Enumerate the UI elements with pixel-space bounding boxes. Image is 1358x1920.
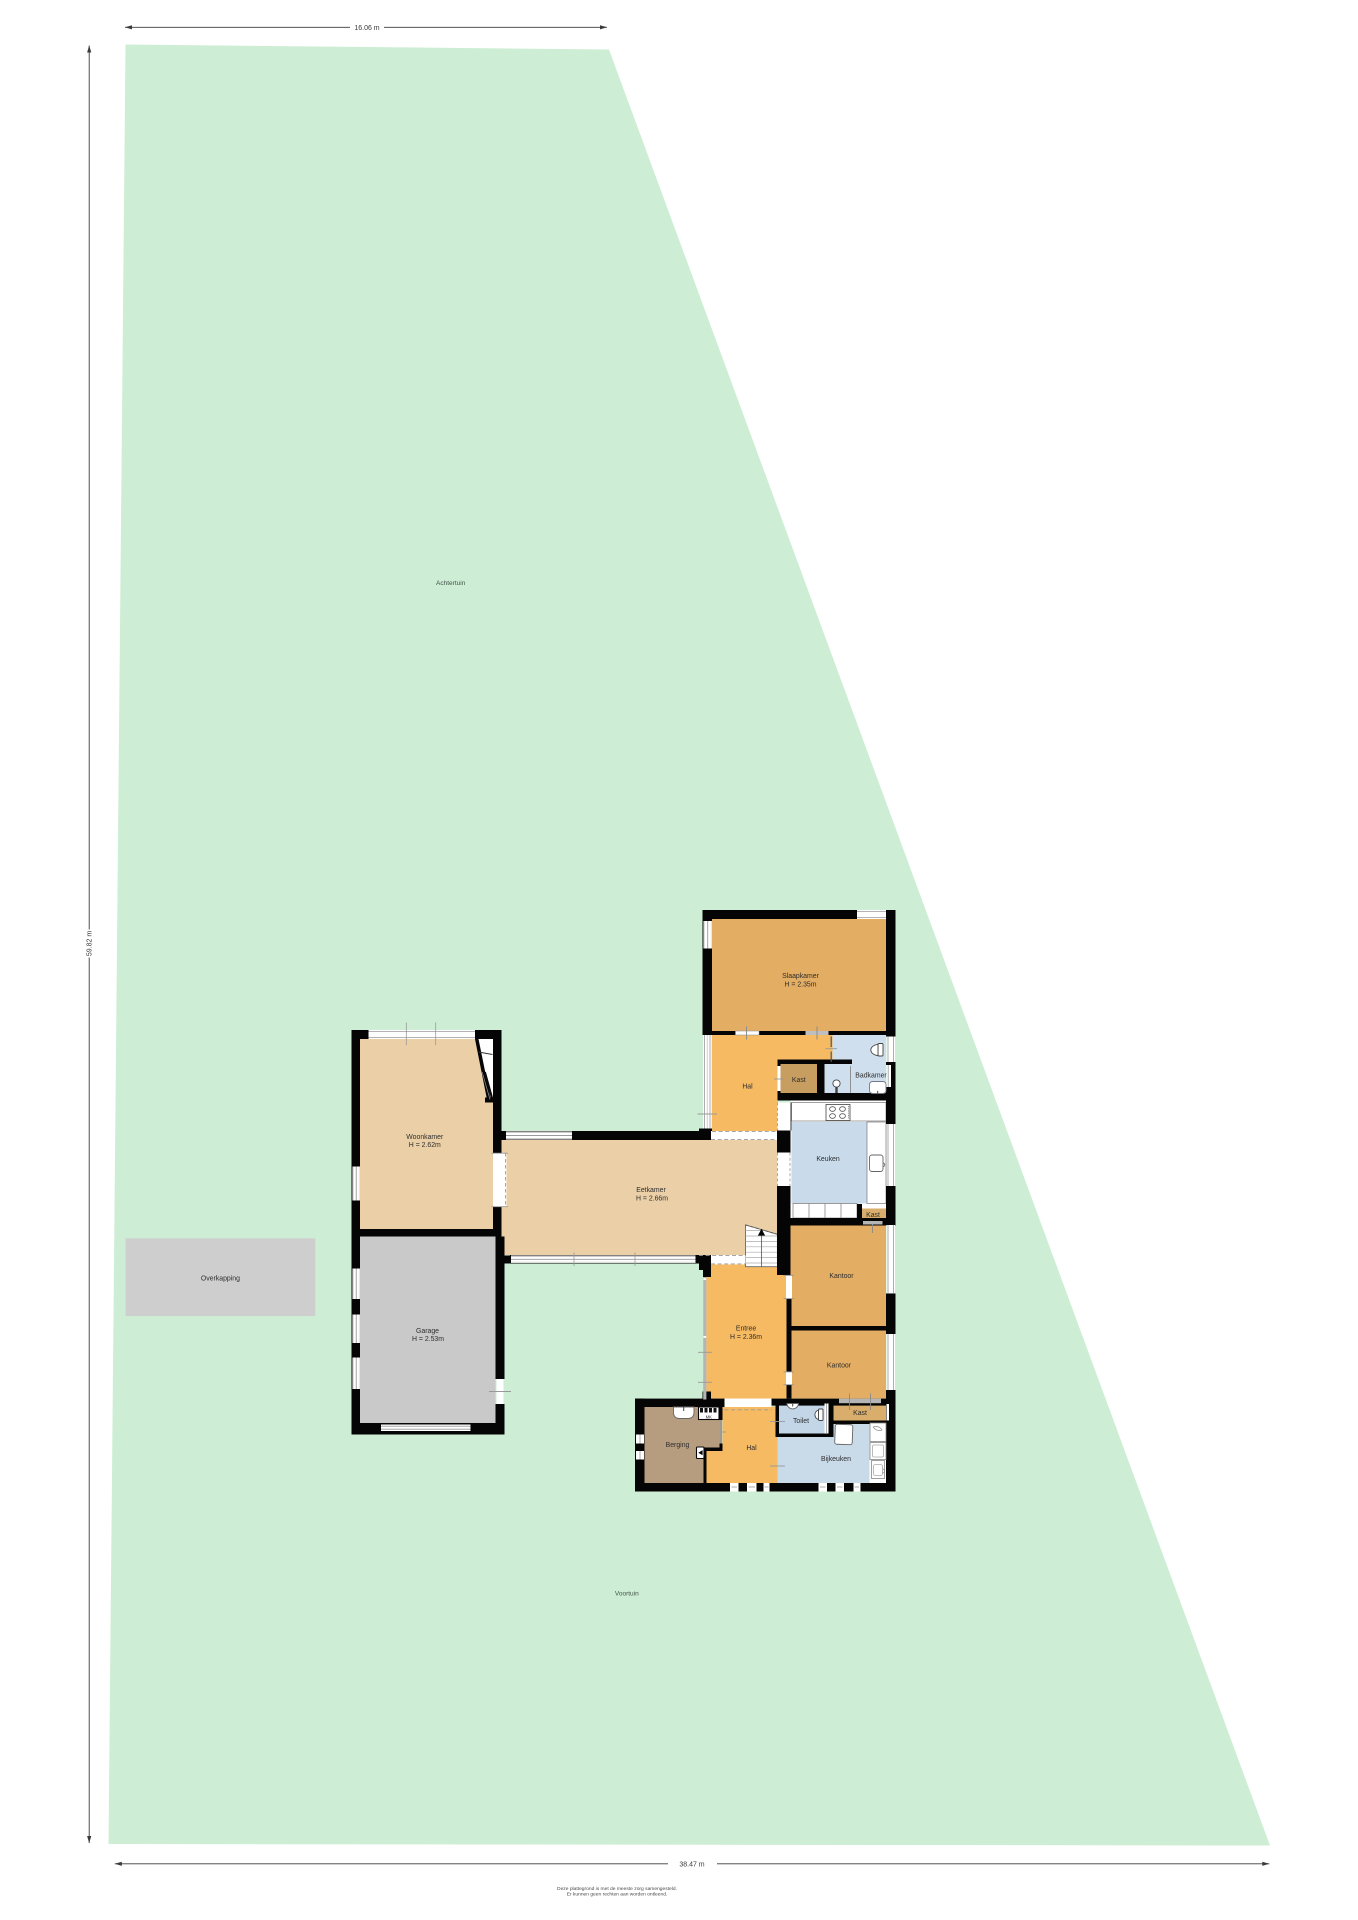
svg-text:Kast: Kast <box>792 1077 806 1084</box>
svg-text:16.06 m: 16.06 m <box>354 25 379 32</box>
svg-text:Badkamer: Badkamer <box>855 1072 887 1079</box>
svg-text:Kantoor: Kantoor <box>829 1273 854 1280</box>
svg-text:Toilet: Toilet <box>793 1418 809 1425</box>
svg-text:Berging: Berging <box>666 1442 690 1449</box>
svg-text:H = 2.62m: H = 2.62m <box>409 1142 441 1149</box>
svg-text:Eetkamer: Eetkamer <box>636 1187 666 1194</box>
svg-text:38.47 m: 38.47 m <box>679 1861 704 1868</box>
svg-text:Deze plattegrond is met de mee: Deze plattegrond is met de meeste zorg s… <box>557 1886 677 1892</box>
svg-text:Kantoor: Kantoor <box>827 1363 852 1370</box>
svg-text:Achtertuin: Achtertuin <box>436 580 466 587</box>
svg-text:Garage: Garage <box>416 1328 439 1335</box>
svg-text:Overkapping: Overkapping <box>201 1276 240 1283</box>
svg-text:Er kunnen geen rechten aan wor: Er kunnen geen rechten aan worden ontlee… <box>567 1892 668 1898</box>
svg-text:Hal: Hal <box>746 1445 757 1452</box>
svg-text:Bijkeuken: Bijkeuken <box>821 1456 851 1463</box>
svg-text:59.82 m: 59.82 m <box>87 931 94 956</box>
svg-text:H = 2.36m: H = 2.36m <box>730 1334 762 1341</box>
svg-text:Keuken: Keuken <box>816 1156 840 1163</box>
svg-text:Kast: Kast <box>853 1410 867 1417</box>
svg-text:Entree: Entree <box>736 1326 756 1333</box>
svg-text:Slaapkamer: Slaapkamer <box>782 973 819 980</box>
svg-text:Voortuin: Voortuin <box>615 1591 639 1598</box>
svg-text:H = 2.53m: H = 2.53m <box>412 1336 444 1343</box>
svg-text:Hal: Hal <box>742 1084 753 1091</box>
svg-text:Woonkamer: Woonkamer <box>406 1134 444 1141</box>
svg-text:Kast: Kast <box>866 1212 880 1219</box>
svg-text:H = 2.66m: H = 2.66m <box>636 1195 668 1202</box>
svg-text:MK: MK <box>706 1414 712 1419</box>
svg-text:H = 2.35m: H = 2.35m <box>785 981 817 988</box>
